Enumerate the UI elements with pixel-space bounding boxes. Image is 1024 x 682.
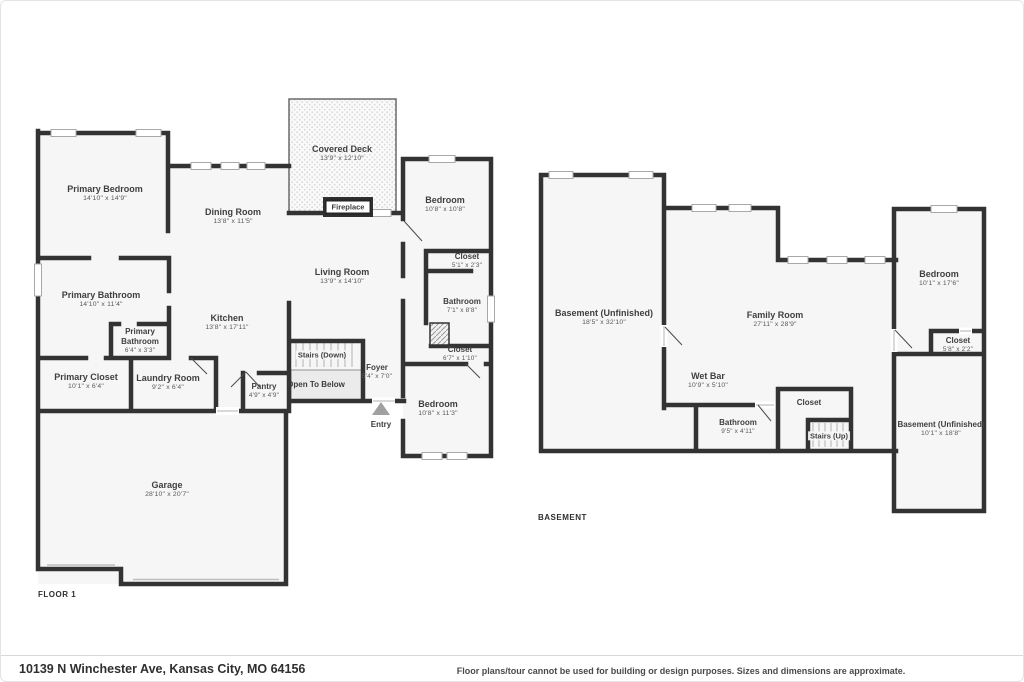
- disclaimer-text: Floor plans/tour cannot be used for buil…: [341, 666, 1021, 676]
- basement-title: BASEMENT: [538, 513, 587, 522]
- utility-hatched-box: [430, 323, 449, 345]
- floor-plan-page: Primary Bedroom 14'10" x 14'9" Dining Ro…: [0, 0, 1024, 682]
- property-address: 10139 N Winchester Ave, Kansas City, MO …: [19, 662, 305, 676]
- covered-deck-area: [289, 99, 396, 213]
- basement-room-fills: [541, 175, 984, 511]
- floor1-title: FLOOR 1: [38, 590, 76, 599]
- footer-divider: [1, 655, 1023, 656]
- floor-plan-drawing: [1, 1, 1024, 682]
- fireplace-label: Fireplace: [325, 200, 372, 215]
- open-to-below-area: [291, 370, 363, 400]
